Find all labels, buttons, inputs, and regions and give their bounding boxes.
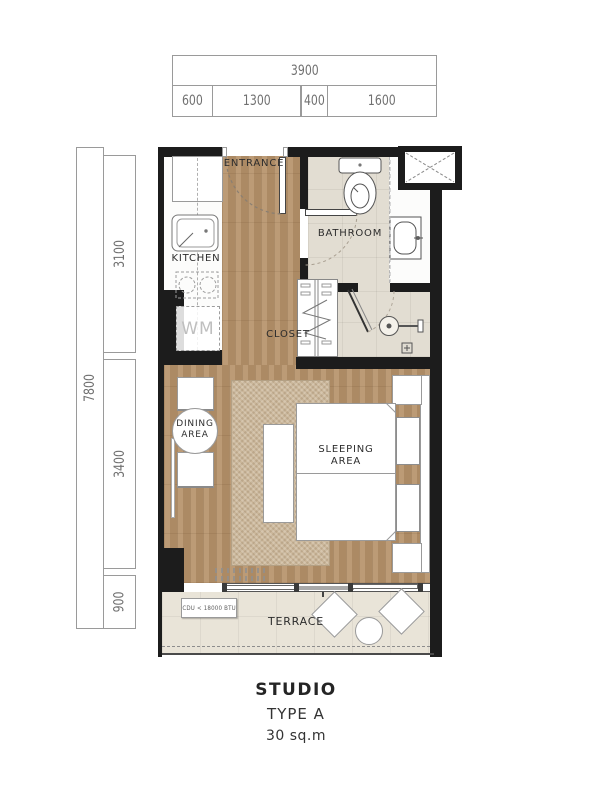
shaft-x-icon [406, 153, 454, 182]
closet-hangers-icon [301, 280, 331, 356]
terrace-label: TERRACE [258, 616, 334, 628]
unit-type: TYPE A [146, 705, 446, 723]
bed-fold-marks [386, 403, 396, 541]
dining-area-label: DINING AREA [165, 419, 225, 441]
bathroom-label: BATHROOM [312, 228, 388, 240]
closet-label: CLOSET [258, 329, 318, 341]
floor-drain-icon [402, 343, 412, 353]
vanity-sink-icon [390, 217, 423, 259]
sleeping-area-label: SLEEPING AREA [306, 444, 386, 468]
toilet-icon [339, 158, 381, 214]
kitchen-sink-icon [172, 215, 218, 251]
shower-head-icon [380, 317, 424, 336]
floor-plan-page: { "dimensions": { "top": { "total": "390… [0, 0, 600, 800]
unit-name: STUDIO [146, 680, 446, 700]
unit-area: 30 sq.m [146, 728, 446, 744]
kitchen-label: KITCHEN [166, 253, 226, 265]
title-block: STUDIO TYPE A 30 sq.m [146, 680, 446, 744]
entrance-label: ENTRANCE [216, 158, 292, 170]
stove-icon [176, 272, 218, 298]
